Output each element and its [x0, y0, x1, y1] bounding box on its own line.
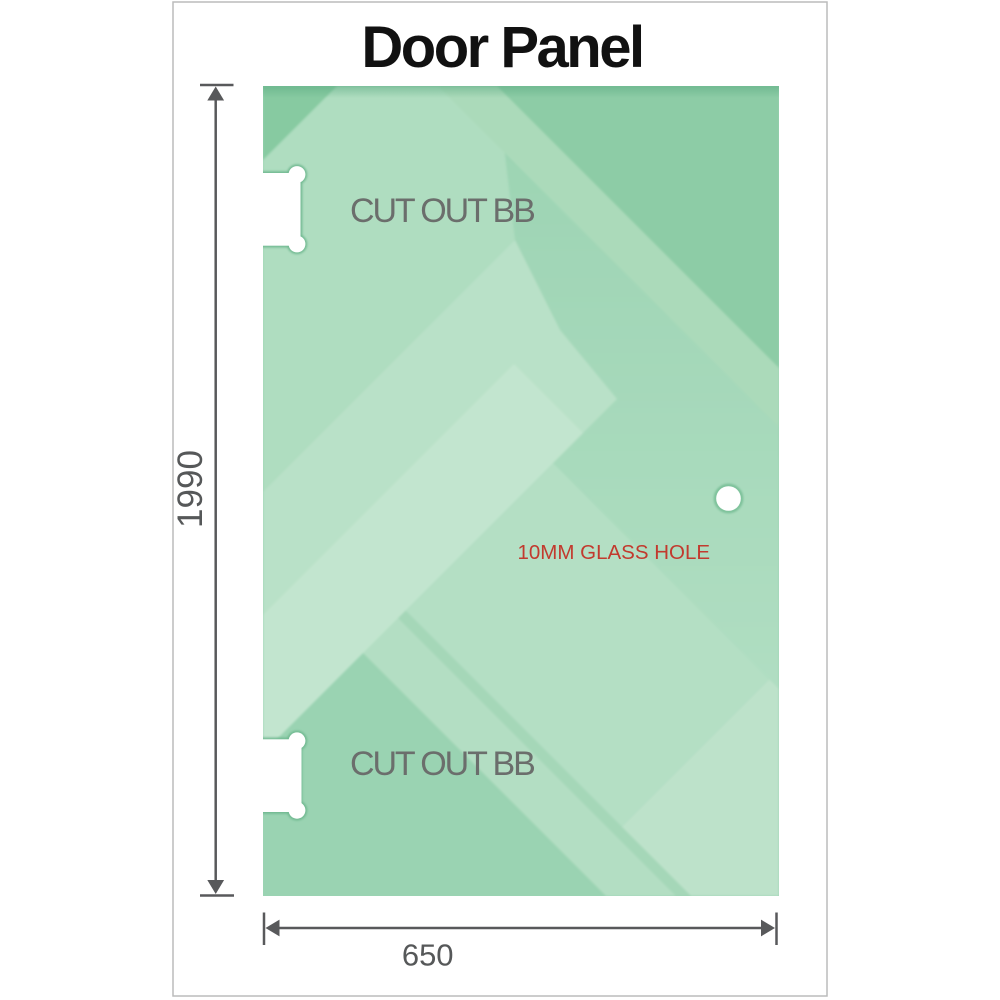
svg-text:Door Panel: Door Panel: [361, 15, 642, 80]
svg-text:1990: 1990: [171, 450, 210, 528]
svg-text:CUT OUT BB: CUT OUT BB: [350, 745, 534, 783]
svg-text:650: 650: [402, 938, 454, 973]
svg-text:CUT OUT BB: CUT OUT BB: [350, 192, 534, 230]
svg-text:10MM GLASS HOLE: 10MM GLASS HOLE: [518, 541, 711, 564]
